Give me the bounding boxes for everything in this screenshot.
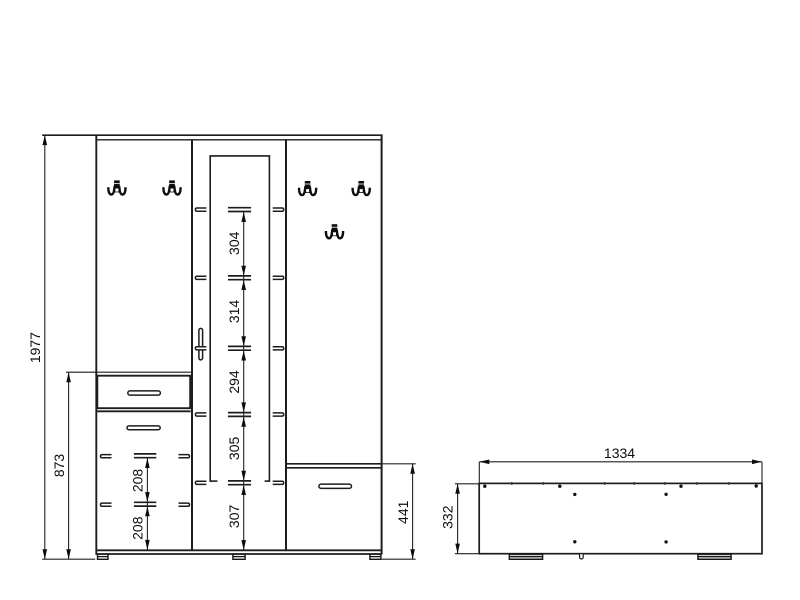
svg-text:1977: 1977 (27, 332, 43, 363)
svg-text:208: 208 (130, 516, 146, 540)
svg-text:1334: 1334 (604, 445, 635, 461)
svg-text:294: 294 (226, 370, 242, 394)
svg-text:208: 208 (130, 469, 146, 493)
svg-text:332: 332 (440, 505, 456, 529)
svg-text:304: 304 (226, 231, 242, 255)
svg-text:307: 307 (226, 505, 242, 529)
svg-text:873: 873 (51, 454, 67, 478)
svg-text:305: 305 (226, 437, 242, 461)
svg-text:441: 441 (395, 500, 411, 524)
svg-text:314: 314 (226, 300, 242, 324)
